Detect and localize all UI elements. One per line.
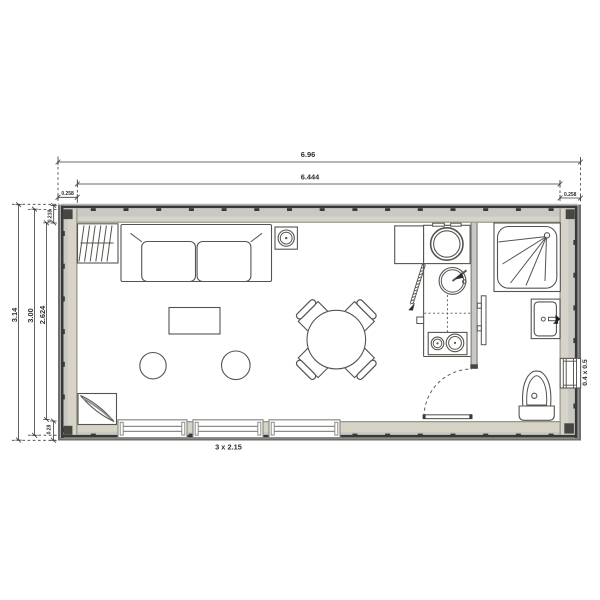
- svg-text:3 x 2.15: 3 x 2.15: [215, 442, 242, 451]
- svg-text:0.218: 0.218: [47, 210, 53, 223]
- svg-text:3.14: 3.14: [10, 307, 19, 322]
- svg-text:0.258: 0.258: [61, 191, 74, 197]
- svg-text:2.624: 2.624: [38, 305, 47, 324]
- svg-text:0.28: 0.28: [46, 424, 52, 434]
- svg-text:6.96: 6.96: [301, 150, 315, 159]
- svg-text:6.444: 6.444: [301, 173, 320, 182]
- svg-text:0.4 x 0.5: 0.4 x 0.5: [582, 359, 589, 386]
- svg-text:3.00: 3.00: [26, 308, 35, 322]
- svg-text:0.258: 0.258: [564, 192, 577, 198]
